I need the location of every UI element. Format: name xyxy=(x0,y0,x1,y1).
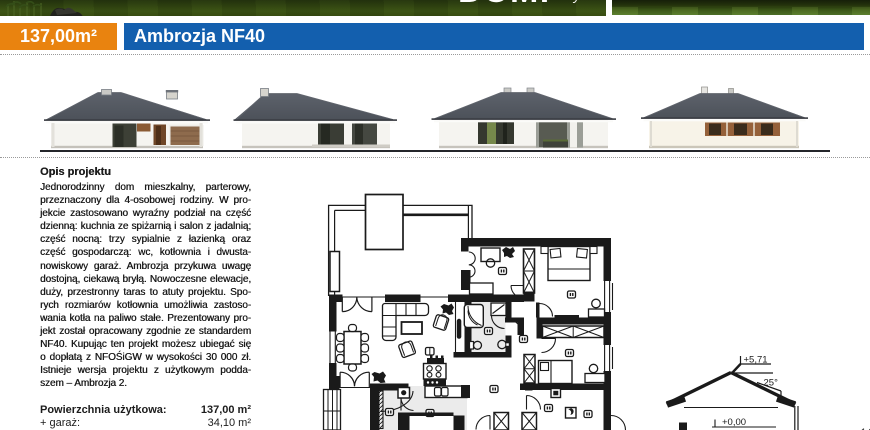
svg-text:+5,71: +5,71 xyxy=(744,355,768,366)
svg-text:25°: 25° xyxy=(764,378,779,389)
svg-text:+0,00: +0,00 xyxy=(722,417,746,428)
